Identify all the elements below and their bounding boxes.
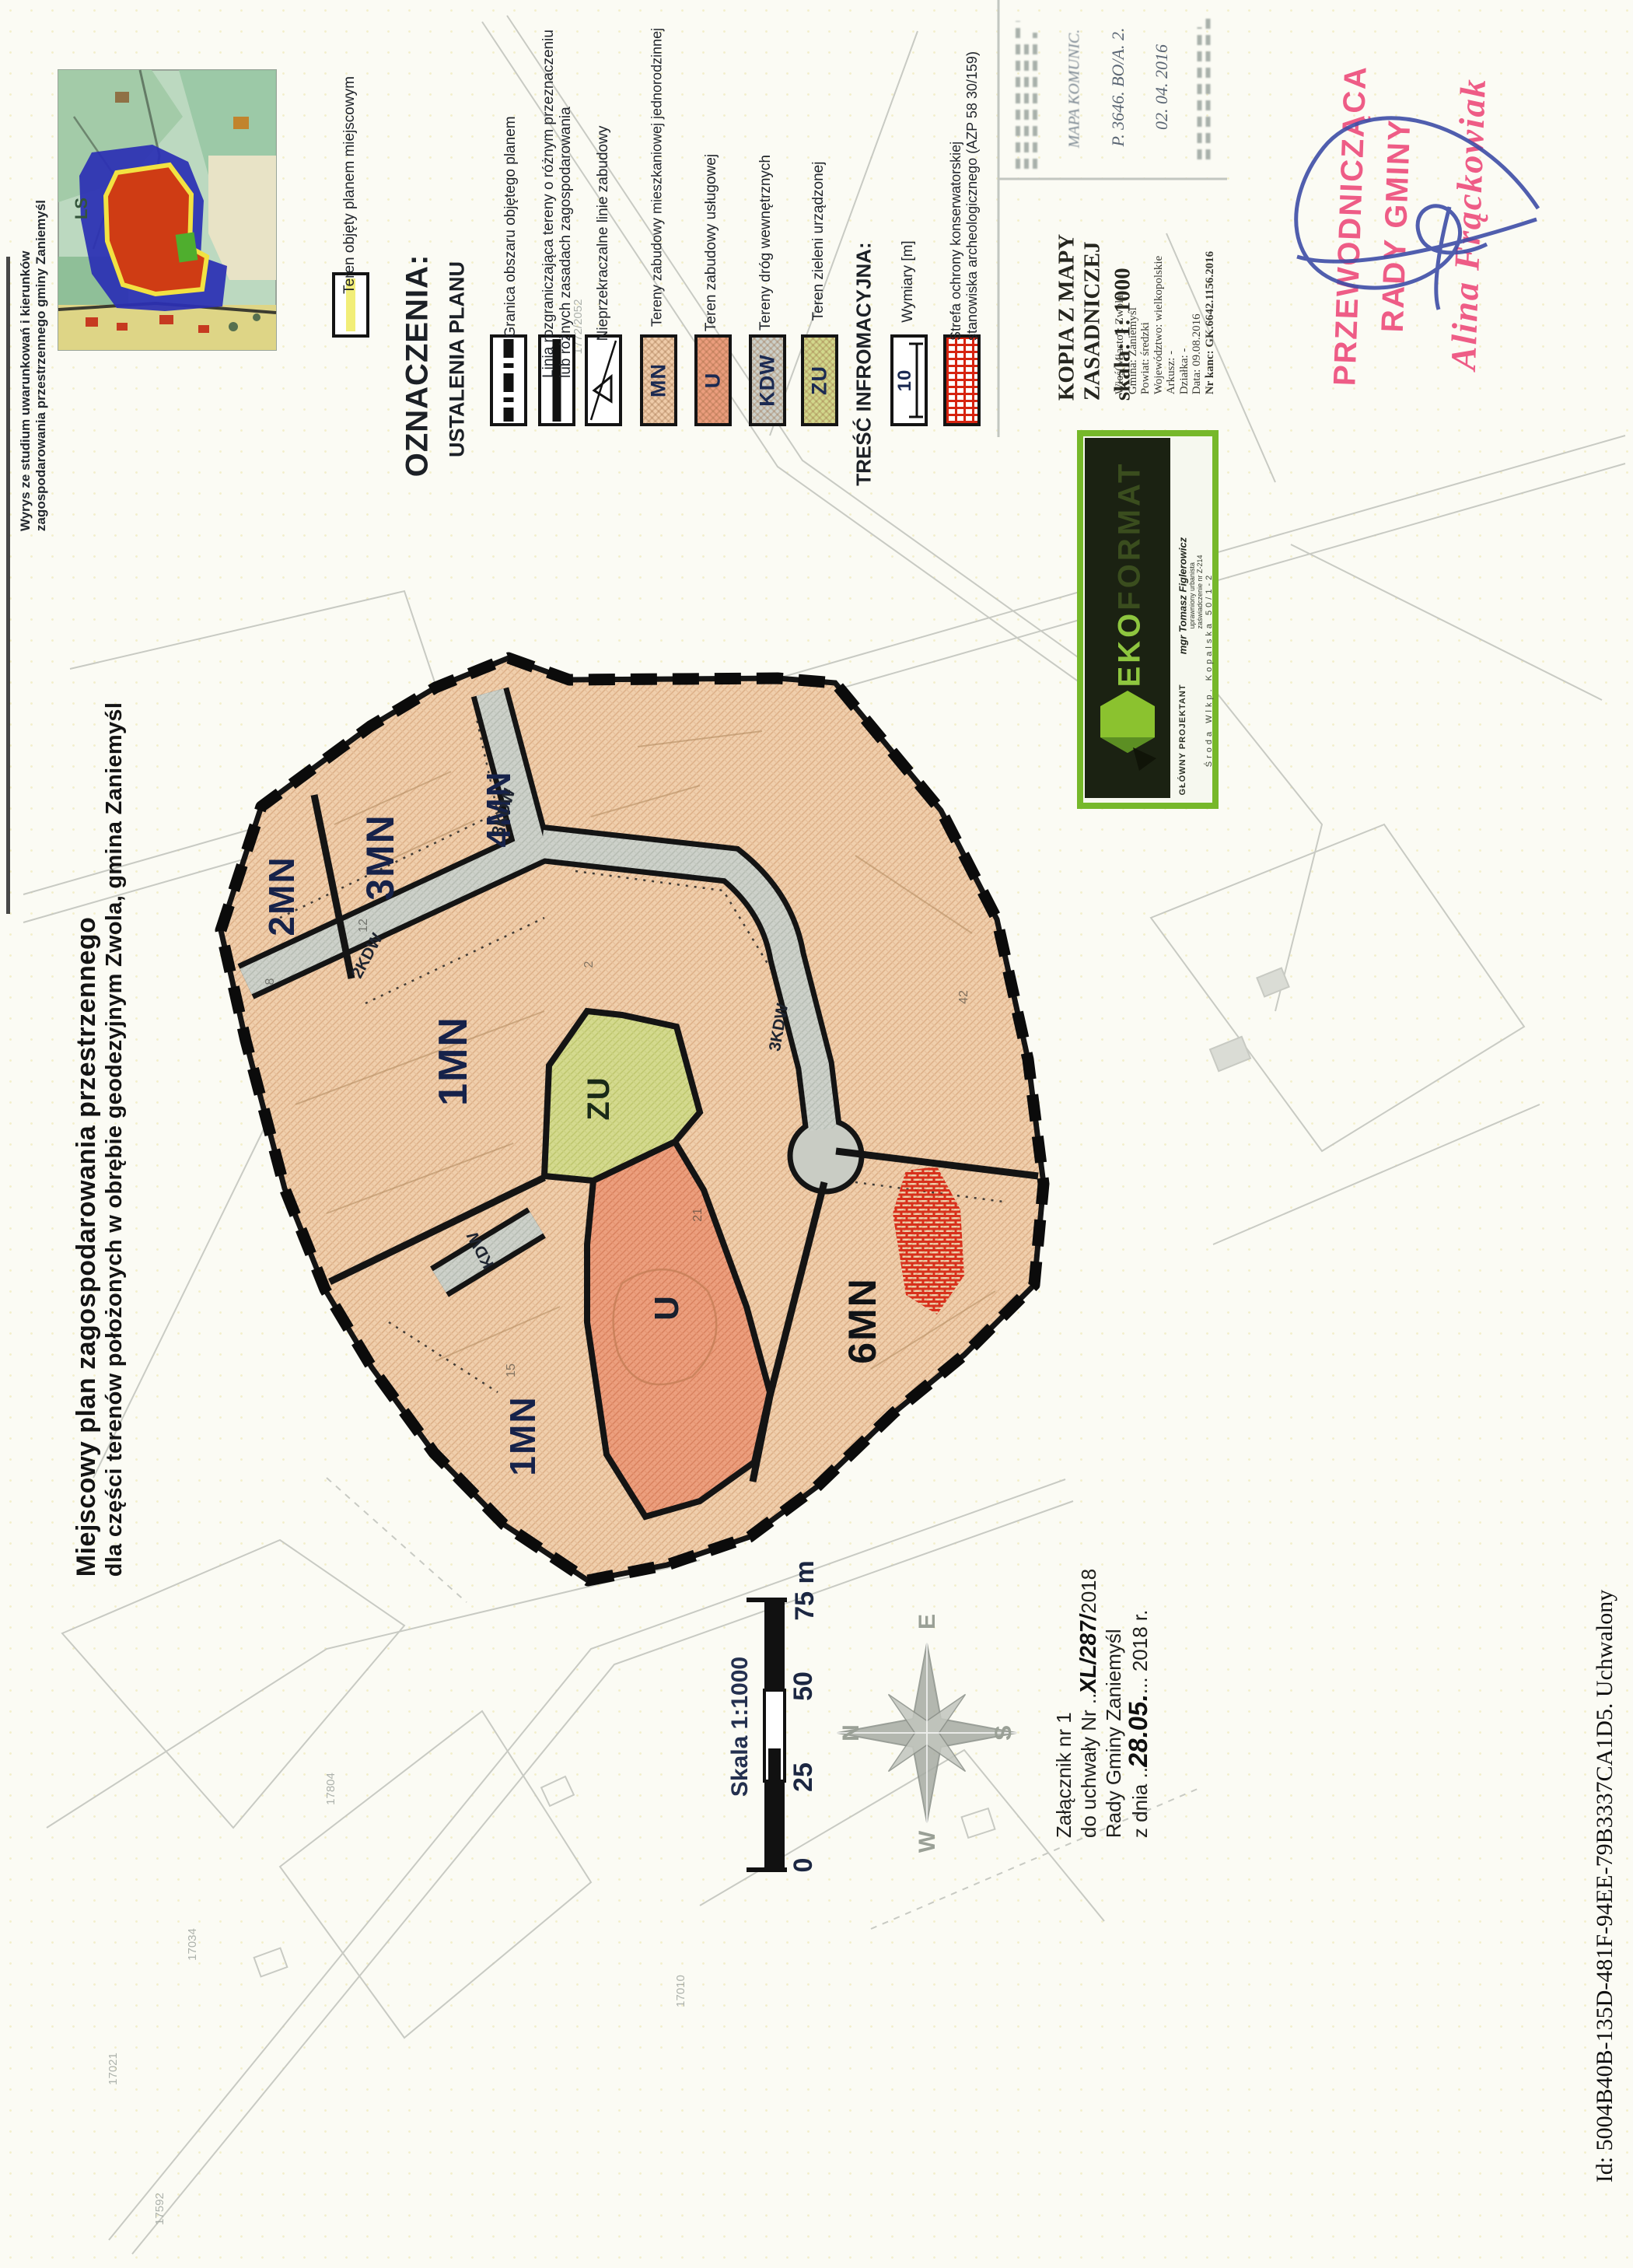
ekoformat-role: GŁÓWNY PROJEKTANT xyxy=(1178,684,1187,795)
legend-code-kdw: KDW xyxy=(756,354,780,406)
kopia-detail: Arkusz: - xyxy=(1165,251,1178,394)
small-number: 12 xyxy=(357,919,370,933)
zone-label-1mn-upper: 1MN xyxy=(431,1016,476,1106)
small-number: 42 xyxy=(957,990,970,1004)
zone-label-1mn-lower: 1MN xyxy=(502,1395,543,1475)
scale-tick-75m: 75 m xyxy=(790,1560,820,1621)
plan-area: 2MN 3MN 4MN 1MN ZU U 1MN 6MN 2KDW 3KDW 3… xyxy=(221,658,1044,1580)
legend-code-mn: MN xyxy=(647,363,671,397)
legend-label-wymiary: Wymiary [m] xyxy=(900,240,917,322)
legend-label-linia: Linia rozgraniczająca tereny o różnym pr… xyxy=(540,30,575,378)
legend-code-zu: ZU xyxy=(808,366,832,395)
zalacznik-line3: Rady Gminy Zaniemyśl xyxy=(1101,1569,1126,1838)
scale-bar: 0 25 50 75 m xyxy=(747,1560,820,1872)
parcel-number: 17804 xyxy=(324,1773,337,1805)
compass-w: W xyxy=(914,1830,940,1853)
zone-label-zu: ZU xyxy=(582,1076,616,1120)
parcel-number: 17010 xyxy=(674,1975,687,2007)
stamp-squiggle xyxy=(1198,27,1202,159)
legend-symbol-mn: MN xyxy=(640,334,677,426)
compass-s: S xyxy=(991,1725,1016,1741)
kopia-detail: Powiat: średzki xyxy=(1139,251,1152,394)
inset-study-map: LS xyxy=(58,70,276,350)
zone-label-6mn: 6MN xyxy=(841,1277,884,1364)
dash-dot-band xyxy=(504,339,514,422)
sheet-title-line1: Miejscowy plan zagospodarowania przestrz… xyxy=(72,702,102,1577)
kopia-detail: Data: 09.08.2016 xyxy=(1191,251,1204,394)
legend-label-u: Teren zabudowy usługowej xyxy=(703,154,720,331)
small-number: 8 xyxy=(264,978,277,985)
legend-label-linia-1: Linia rozgraniczająca tereny o różnym pr… xyxy=(540,30,558,378)
compass-e: E xyxy=(914,1614,940,1629)
kopia-title-1: KOPIA Z MAPY xyxy=(1054,234,1080,401)
legend-symbol-strefa xyxy=(943,334,981,426)
parcel-number: 17034 xyxy=(186,1928,199,1961)
scan-edge-artifact xyxy=(6,257,10,914)
zone-label-3mn: 3MN xyxy=(358,814,402,901)
zalacznik-line4: z dnia ..28.05.... 2018 r. xyxy=(1126,1569,1152,1838)
zalacznik-line2: do uchwały Nr ..XL/287/2018 xyxy=(1076,1569,1101,1838)
zalacznik-line4-suffix: ... 2018 r. xyxy=(1128,1610,1152,1694)
stamp-fragment-3: 02. 04. 2016 xyxy=(1152,44,1172,130)
legend-subheader: USTALENIA PLANU xyxy=(446,261,470,457)
legend-label-strefa-2: stanowiska archeologicznego (AZP 58 30/1… xyxy=(964,51,981,341)
zone-label-u: U xyxy=(648,1296,686,1321)
zalacznik-block: Załącznik nr 1 do uchwały Nr ..XL/287/20… xyxy=(1051,1569,1152,1838)
legend-symbol-granica xyxy=(490,334,527,426)
zalacznik-line2-prefix: do uchwały Nr .. xyxy=(1077,1693,1100,1838)
inset-caption-line2: zagospodarowania przestrzennego gminy Za… xyxy=(33,200,49,531)
legend-label-zu: Teren zieleni urządzonej xyxy=(810,162,827,321)
parcel-number: 17592 xyxy=(153,2193,166,2225)
sheet-title-line2: dla części terenów położonych w obrębie … xyxy=(102,702,128,1577)
small-number: 15 xyxy=(505,1363,518,1377)
legend-symbol-zu: ZU xyxy=(801,334,838,426)
stamp-fragment-2: P. 3646. BO/A. 2. xyxy=(1108,28,1128,147)
legend-symbol-zabudowa xyxy=(585,334,622,426)
legend-label-mn: Tereny zabudowy mieszkaniowej jednorodzi… xyxy=(649,28,666,327)
inset-caption: Wyrys ze studium uwarunkowań i kierunków… xyxy=(18,200,49,531)
ekoformat-name: mgr Tomasz Figlerowicz xyxy=(1177,537,1189,655)
compass-n: N xyxy=(838,1724,864,1741)
legend-symbol-kdw: KDW xyxy=(749,334,786,426)
forest-label: LS xyxy=(72,198,91,219)
kopia-details: Wieś(Miasto): Zwola Gmina: Zaniemyśl Pow… xyxy=(1114,251,1216,394)
chairwoman-stamp-line2: RADY GMINY xyxy=(1376,118,1418,333)
scale-tick-0: 0 xyxy=(789,1858,818,1873)
legend-code-10: 10 xyxy=(894,369,916,392)
inset-caption-line1: Wyrys ze studium uwarunkowań i kierunków xyxy=(18,200,33,531)
parcel-number: 17021 xyxy=(107,2053,120,2085)
legend-label-granica: Granica obszaru objętego planem xyxy=(502,116,519,338)
scanned-plan-sheet: 17021 17034 17592 17804 17010 1772/2052 … xyxy=(0,0,1633,2268)
stamp-squiggle xyxy=(1033,33,1037,169)
legend-header: OZNACZENIA: xyxy=(400,254,435,478)
kopia-detail: Wieś(Miasto): Zwola xyxy=(1114,251,1127,394)
stamp-fragment-1: MAPA KOMUNIC. xyxy=(1066,30,1084,149)
scale-title: Skala 1:1000 xyxy=(727,1657,754,1797)
stamp-illegible-1 xyxy=(1012,5,1041,169)
ekoformat-stamp: EKOFORMAT mgr Tomasz Figlerowicz uprawni… xyxy=(1077,430,1219,809)
legend-label-linia-2: lub różnych zasadach zagospodarowania xyxy=(558,30,575,378)
kopia-title-2: ZASADNICZEJ xyxy=(1080,234,1106,401)
legend-label-strefa: Strefa ochrony konserwatorskiej stanowis… xyxy=(948,51,981,341)
zalacznik-line4-prefix: z dnia .. xyxy=(1128,1767,1152,1838)
zone-label-2mn: 2MN xyxy=(261,856,302,936)
zalacznik-line2-suffix: 2018 xyxy=(1077,1569,1100,1614)
ekoformat-hexagon-logo xyxy=(1085,438,1170,798)
stamp-squiggle xyxy=(1206,16,1211,159)
legend-label-zabudowa: Nieprzekraczalne linie zabudowy xyxy=(595,126,612,341)
legend-label-kdw: Tereny dróg wewnętrznych xyxy=(757,155,775,331)
zalacznik-line1: Załącznik nr 1 xyxy=(1051,1569,1076,1838)
ekoformat-cred1: uprawniony urbanista xyxy=(1188,555,1196,628)
small-number: 21 xyxy=(691,1208,705,1222)
small-number: 2 xyxy=(582,961,596,968)
inset-area-symbol-label: Teren objęty planem miejscowym xyxy=(341,76,358,294)
ekoformat-credentials: uprawniony urbanista zaświadczenie nr Z-… xyxy=(1188,555,1204,628)
sheet-title: Miejscowy plan zagospodarowania przestrz… xyxy=(72,702,128,1577)
zalacznik-line4-handwritten: 28.05. xyxy=(1126,1692,1151,1768)
ekoformat-cred2: zaświadczenie nr Z-214 xyxy=(1196,555,1204,628)
kopia-detail: Działka: - xyxy=(1178,251,1191,394)
stamp-illegible-2 xyxy=(1194,12,1215,159)
ekoformat-address: Środa Wlkp. Kopalska 50/1-2 xyxy=(1205,572,1214,767)
compass-rose: E S W N xyxy=(837,1614,1016,1853)
legend-code-u: U xyxy=(701,373,726,389)
legend-symbol-u: U xyxy=(694,334,732,426)
legend-info-header: TREŚĆ INFROMACYJNA: xyxy=(852,242,876,485)
kopia-detail: Gmina: Zaniemyśl xyxy=(1127,251,1140,394)
zalacznik-line2-handwritten: XL/287/ xyxy=(1076,1612,1101,1694)
scale-tick-25: 25 xyxy=(789,1762,818,1792)
legend-label-strefa-1: Strefa ochrony konserwatorskiej xyxy=(948,51,964,341)
stamp-squiggle xyxy=(1024,44,1029,169)
setback-triangle-icon xyxy=(588,338,619,423)
stamp-squiggle xyxy=(1016,21,1020,169)
footer-id: Id: 5004B40B-135D-481F-94EE-79B3337CA1D5… xyxy=(1592,1590,1618,2182)
kopia-detail: Województwo: wielkopolskie xyxy=(1152,251,1166,394)
legend-symbol-wymiary: 10 xyxy=(890,334,928,426)
scale-tick-50: 50 xyxy=(789,1671,818,1701)
kopia-detail: Nr kanc: GK.6642.1156.2016 xyxy=(1204,251,1217,394)
ekoformat-dark-panel: EKOFORMAT xyxy=(1085,438,1170,798)
